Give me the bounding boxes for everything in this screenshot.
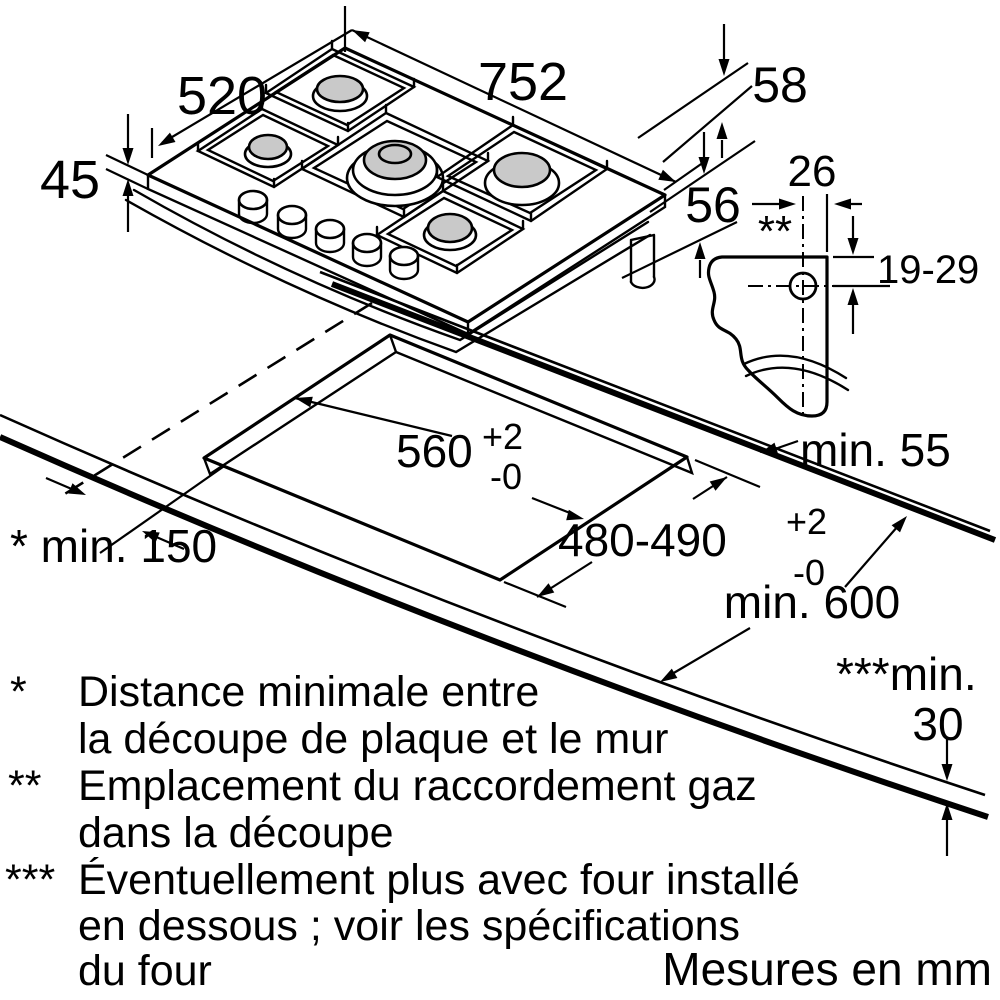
clearance-wall-label: * min. 150: [10, 520, 217, 572]
burner-cap: [317, 76, 363, 102]
note1-line2: la découpe de plaque et le mur: [78, 715, 668, 763]
burner-cap: [494, 153, 550, 187]
gas-marker-label: **: [758, 207, 792, 256]
gas-offset-label: 26: [788, 147, 837, 196]
board-thickness-prefix: ***min.: [836, 648, 977, 700]
dim-below-label: 56: [685, 177, 741, 233]
units-note: Mesures en mm: [662, 943, 992, 995]
diagram-canvas: 752 520 45 58 56: [0, 0, 1000, 1000]
burner-cap: [428, 214, 472, 242]
dim-58-ext: [638, 63, 752, 162]
installation-diagram: 752 520 45 58 56: [0, 0, 1000, 1000]
dim-rear-label: 58: [752, 57, 808, 113]
note1-symbol: *: [10, 668, 27, 716]
cutout-width-tol-plus: +2: [482, 416, 523, 457]
note2-line2: dans la découpe: [78, 809, 394, 857]
clearance-rear-label: min. 55: [800, 424, 951, 476]
dim-width-label: 752: [478, 52, 568, 112]
note3-line2: en dessous ; voir les spécifications: [78, 902, 740, 950]
note2-line1: Emplacement du raccordement gaz: [78, 762, 757, 810]
note3-symbol: ***: [5, 856, 55, 904]
footnotes: * Distance minimale entre la découpe de …: [5, 668, 992, 995]
note1-line1: Distance minimale entre: [78, 668, 539, 716]
cutout-width-label: 560: [396, 425, 473, 477]
note3-line1: Éventuellement plus avec four installé: [78, 856, 800, 904]
cutout-depth-label: 480-490: [558, 514, 727, 566]
note2-symbol: **: [8, 762, 42, 810]
dim-depth-label: 520: [177, 66, 267, 126]
gas-connection-detail: 26 ** 19-29: [708, 147, 979, 418]
board-thickness-value: 30: [912, 698, 963, 750]
cutout-width-tol-minus: -0: [490, 456, 522, 497]
dim-thickness-label: 45: [40, 150, 100, 210]
clearance-front-label: min. 600: [724, 576, 900, 628]
gas-range-label: 19-29: [877, 248, 979, 292]
note3-line3: du four: [78, 947, 212, 995]
cutout-depth-tol-plus: +2: [786, 501, 827, 542]
burner-cap: [249, 135, 287, 159]
